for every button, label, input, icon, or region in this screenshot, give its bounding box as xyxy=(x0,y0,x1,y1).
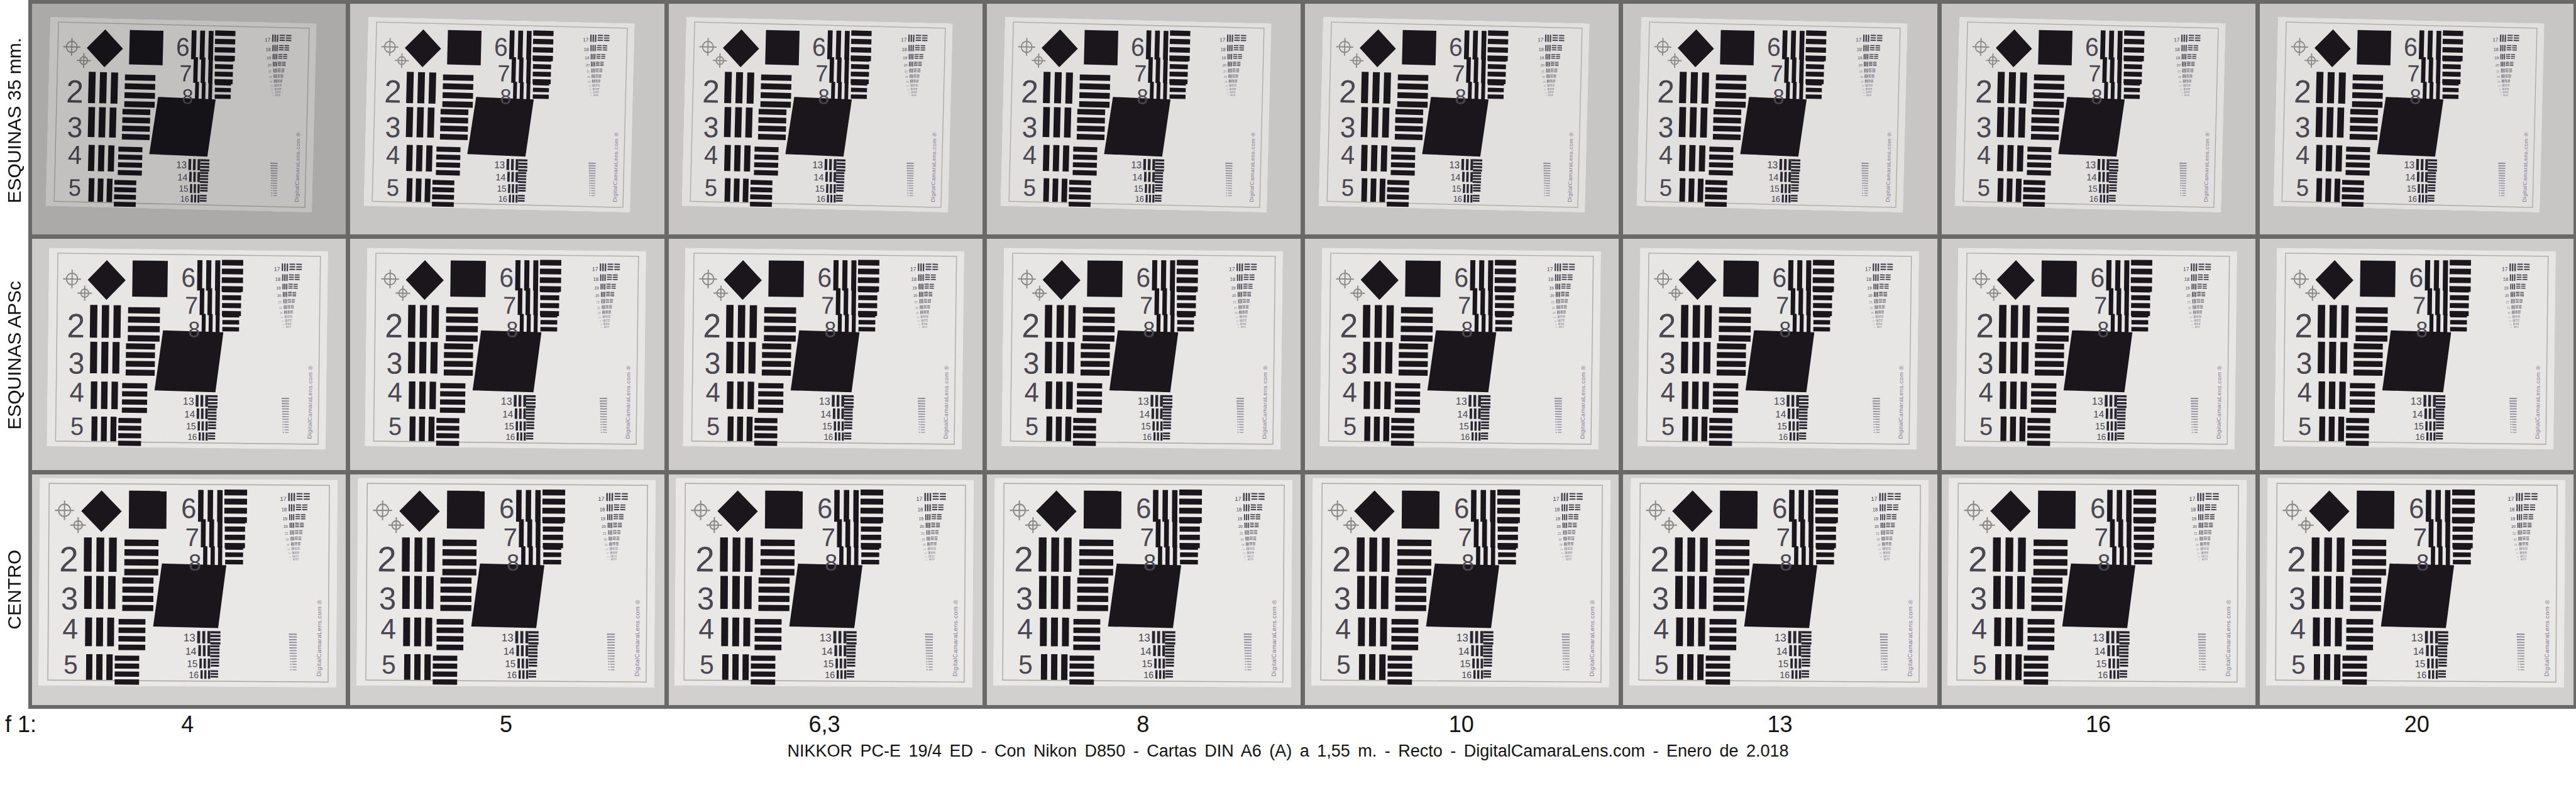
chart-cell-centro-f4 xyxy=(32,474,346,705)
chart-cell-centro-f10 xyxy=(1305,474,1619,705)
test-chart-photo xyxy=(47,248,328,449)
aperture-label-f6-3: 6,3 xyxy=(665,711,984,738)
test-chart-photo xyxy=(1001,248,1283,449)
chart-cell-esquinas-35mm-f5 xyxy=(350,4,664,234)
row-label-text: CENTRO xyxy=(4,550,25,630)
aperture-label-f16: 16 xyxy=(1939,711,2258,738)
row-label-esquinas-35mm: ESQUINAS 35 mm. xyxy=(0,3,28,238)
aperture-label-f13: 13 xyxy=(1621,711,1939,738)
row-label-text: ESQUINAS 35 mm. xyxy=(4,38,25,203)
test-chart-photo xyxy=(1629,478,1929,687)
test-chart-photo xyxy=(356,478,656,687)
chart-cell-esquinas-35mm-f8 xyxy=(987,4,1301,234)
test-chart-photo xyxy=(2274,248,2556,449)
f-number-prefix: f 1: xyxy=(5,711,36,738)
test-chart-photo xyxy=(993,478,1293,687)
test-chart-photo xyxy=(1318,17,1590,212)
chart-cell-esquinas-35mm-f20 xyxy=(2260,4,2573,234)
row-label-centro: CENTRO xyxy=(0,473,28,707)
test-chart-photo xyxy=(1638,248,1919,449)
aperture-label-f4: 4 xyxy=(28,711,347,738)
test-chart-photo xyxy=(683,248,965,449)
chart-cell-esquinas-apsc-f16 xyxy=(1942,239,2255,469)
chart-cell-esquinas-apsc-f8 xyxy=(987,239,1301,469)
row-label-text: ESQUINAS APSc xyxy=(4,281,25,430)
chart-cell-centro-f6-3 xyxy=(669,474,983,705)
chart-cell-esquinas-apsc-f10 xyxy=(1305,239,1619,469)
chart-cell-esquinas-apsc-f13 xyxy=(1623,239,1937,469)
chart-cell-centro-f20 xyxy=(2260,474,2573,705)
test-chart-photo xyxy=(1311,478,1611,687)
test-chart-photo xyxy=(1947,478,2247,687)
row-labels: ESQUINAS 35 mm. ESQUINAS APSc CENTRO xyxy=(0,3,28,707)
chart-cell-esquinas-35mm-f10 xyxy=(1305,4,1619,234)
chart-cell-esquinas-apsc-f4 xyxy=(32,239,346,469)
chart-cell-centro-f5 xyxy=(350,474,664,705)
test-chart-photo xyxy=(1955,17,2226,212)
chart-cell-esquinas-apsc-f20 xyxy=(2260,239,2573,469)
test-chart-photo xyxy=(1637,17,1908,212)
test-chart-photo xyxy=(364,17,636,212)
test-chart-photo xyxy=(682,17,954,212)
chart-cell-centro-f8 xyxy=(987,474,1301,705)
test-chart-photo xyxy=(2266,478,2566,687)
chart-cell-esquinas-apsc-f5 xyxy=(350,239,664,469)
chart-cell-esquinas-35mm-f4 xyxy=(32,4,346,234)
chart-cell-centro-f13 xyxy=(1623,474,1937,705)
lens-test-comparison-sheet: 2345678131415161718192021222324252627Dig… xyxy=(0,0,2576,788)
aperture-label-f20: 20 xyxy=(2257,711,2576,738)
aperture-label-f5: 5 xyxy=(347,711,666,738)
test-chart-photo xyxy=(1000,17,1272,212)
test-chart-photo xyxy=(1956,248,2238,449)
aperture-label-f8: 8 xyxy=(984,711,1302,738)
chart-cell-esquinas-35mm-f16 xyxy=(1942,4,2255,234)
row-label-esquinas-apsc: ESQUINAS APSc xyxy=(0,238,28,472)
chart-cell-centro-f16 xyxy=(1942,474,2255,705)
chart-grid xyxy=(28,0,2576,709)
test-chart-photo xyxy=(45,17,317,212)
test-chart-photo xyxy=(674,478,974,687)
chart-cell-esquinas-35mm-f6-3 xyxy=(669,4,983,234)
test-chart-photo xyxy=(2273,17,2545,212)
aperture-label-f10: 10 xyxy=(1302,711,1621,738)
test-chart-photo xyxy=(1319,248,1601,449)
test-chart-photo xyxy=(38,478,338,687)
test-chart-photo xyxy=(365,248,646,449)
sheet-caption: NIKKOR PC-E 19/4 ED - Con Nikon D850 - C… xyxy=(0,741,2576,761)
chart-cell-esquinas-apsc-f6-3 xyxy=(669,239,983,469)
chart-cell-esquinas-35mm-f13 xyxy=(1623,4,1937,234)
aperture-label-row: f 1: 4 5 6,3 8 10 13 16 20 xyxy=(0,709,2576,740)
